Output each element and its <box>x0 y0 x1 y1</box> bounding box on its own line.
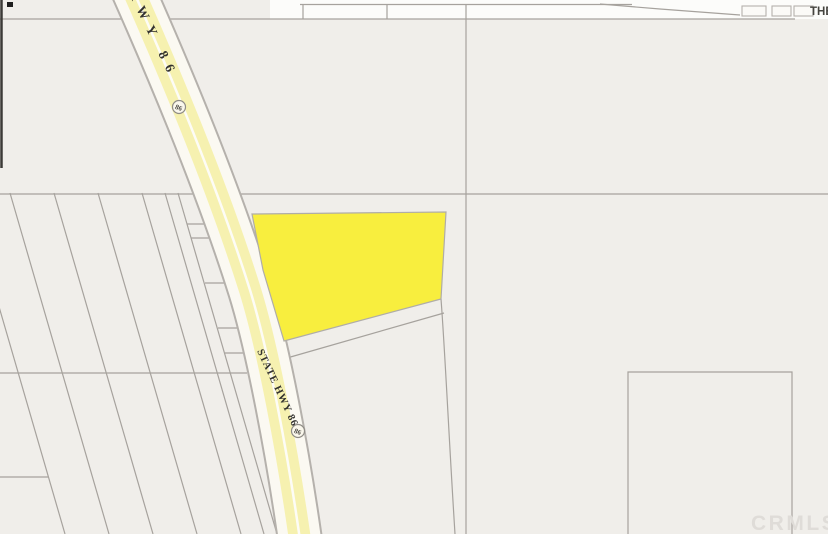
top-right-cutoff-text: THE <box>810 6 828 18</box>
parcel-map: HWY 86 86 STATE HWY 86 86 THE CRMLS <box>0 0 828 534</box>
crmls-watermark: CRMLS <box>751 512 828 534</box>
top-right-box-1 <box>742 6 766 16</box>
top-right-box-2 <box>772 6 791 16</box>
route-86-shield-top: 86 <box>173 101 186 114</box>
scan-speck <box>7 2 13 7</box>
listing-map-image: HWY 86 86 STATE HWY 86 86 THE CRMLS <box>0 0 828 534</box>
top-right-structures <box>742 6 813 16</box>
route-86-shield-bottom: 86 <box>292 425 305 438</box>
